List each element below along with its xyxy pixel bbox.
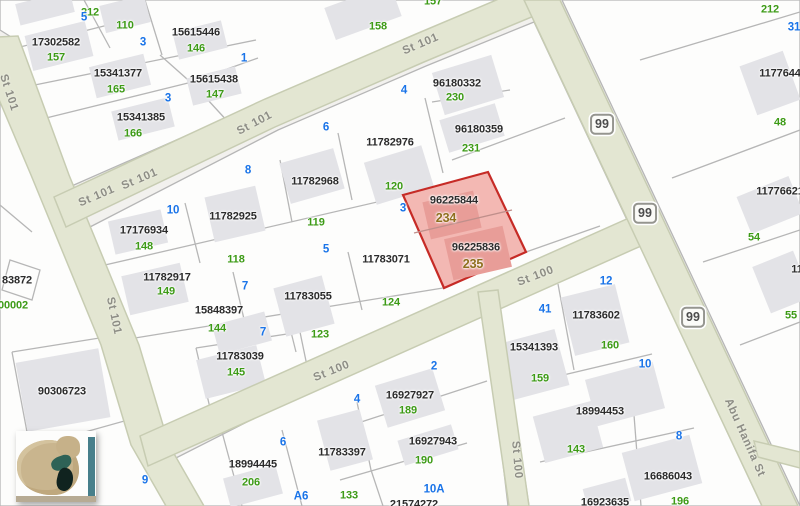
plot-number-label: 231 [462, 144, 480, 155]
unit-number-label: 4 [354, 394, 360, 406]
parcel-number-label: 16686043 [644, 472, 692, 483]
parcel-number-label: 21574272 [390, 500, 438, 506]
road-name-label: St 100 [516, 265, 556, 289]
unit-number-label: 3 [400, 203, 406, 215]
plot-number-label: 48 [774, 118, 786, 129]
plot-number-label: 157 [424, 0, 442, 8]
parcel-number-label: 15615446 [172, 28, 220, 39]
plot-number-label: 159 [531, 374, 549, 385]
plot-number-label: 54 [748, 233, 760, 244]
parcel-number-label: 15341393 [510, 343, 558, 354]
plot-number-label: 206 [242, 478, 260, 489]
plot-number-label: 145 [227, 368, 245, 379]
plot-number-label: 55 [785, 311, 797, 322]
plot-number-label: 149 [157, 287, 175, 298]
parcel-number-label: 15341377 [94, 69, 142, 80]
parcel-number-label: 11782917 [143, 273, 191, 284]
unit-number-label: 6 [280, 437, 286, 449]
parcel-number-label: 96180332 [433, 79, 481, 90]
plot-number-label: 144 [208, 324, 226, 335]
road-name-label: St 101 [103, 296, 122, 336]
parcel-number-label: 15848397 [195, 306, 243, 317]
parcel-number-label: 96180359 [455, 125, 503, 136]
road-name-label: St 100 [509, 441, 524, 480]
basemap-thumbnail[interactable] [16, 431, 96, 502]
unit-number-label: 10 [167, 205, 180, 217]
unit-number-label: 31 [788, 22, 800, 34]
plot-number-label: 158 [369, 22, 387, 33]
road-name-label: St 100 [312, 360, 352, 385]
unit-number-label: A6 [294, 491, 309, 503]
parcel-number-label: 11783397 [318, 448, 366, 459]
parcel-number-label: 83872 [2, 276, 32, 287]
road-name-label: Abu Hanifa St [722, 397, 767, 479]
plot-number-label: 143 [567, 445, 585, 456]
plot-number-label: 160 [601, 341, 619, 352]
parcel-number-label: 11 [791, 265, 800, 276]
parcel-number-label: 96225836 [452, 243, 500, 254]
plot-number-label: 123 [311, 330, 329, 341]
road-name-label: St 101 [77, 184, 117, 209]
unit-number-label: 10 [639, 359, 652, 371]
plot-number-label: 190 [415, 456, 433, 467]
parcel-number-label: 96225844 [430, 196, 478, 207]
parcel-number-label: 11783071 [362, 255, 410, 266]
unit-number-label: 8 [676, 431, 682, 443]
map-labels-layer: 1730258215615446153413771561543815341385… [0, 0, 800, 506]
parcel-number-label: 11782925 [209, 212, 257, 223]
plot-number-label: 110 [116, 21, 133, 32]
parcel-number-label: 18994453 [576, 407, 624, 418]
unit-number-label: 2 [431, 361, 437, 373]
parcel-number-label: 11776445 [759, 69, 800, 80]
unit-number-label: 5 [323, 244, 329, 256]
plot-number-label: 146 [187, 44, 205, 55]
unit-number-label: 7 [260, 327, 266, 339]
route-99-badge: 99 [633, 203, 657, 224]
unit-number-label: 4 [401, 85, 407, 97]
plot-number-label: 148 [135, 242, 153, 253]
unit-number-label: 12 [600, 276, 613, 288]
parcel-number-label: 11783039 [216, 352, 264, 363]
unit-number-label: 3 [140, 37, 146, 49]
plot-number-label: 166 [124, 129, 142, 140]
thumbnail-bottom-bar [16, 496, 96, 502]
plot-number-label: 147 [206, 90, 224, 101]
parcel-number-label: 11782976 [366, 138, 414, 149]
plot-number-label: 120 [385, 182, 403, 193]
route-99-badge: 99 [681, 307, 705, 328]
road-name-label: St 101 [120, 167, 160, 192]
plot-number-label: 133 [340, 491, 358, 502]
plot-number-label: 212 [761, 5, 779, 16]
plot-number-label: 00002 [0, 301, 28, 312]
parcel-number-label: 15341385 [117, 113, 165, 124]
parcel-number-label: 11776621 [756, 187, 800, 198]
plot-number-label: 118 [227, 255, 244, 266]
parcel-number-label: 18994445 [229, 460, 277, 471]
unit-number-label: 9 [142, 475, 148, 487]
parcel-number-label: 11782968 [291, 177, 339, 188]
thumbnail-sea-strip [88, 437, 95, 497]
plot-number-label: 119 [307, 218, 324, 229]
parcel-number-label: 16923635 [581, 498, 629, 506]
plot-number-label: 157 [47, 53, 65, 64]
unit-number-label: 6 [323, 122, 329, 134]
unit-number-label: 7 [242, 281, 248, 293]
road-name-label: St 101 [401, 32, 441, 57]
unit-number-label: 1 [241, 53, 247, 65]
plot-number-label: 189 [399, 406, 417, 417]
parcel-number-label: 15615438 [190, 75, 238, 86]
plot-number-label: 124 [382, 298, 400, 309]
road-name-label: St 101 [235, 110, 274, 138]
unit-number-label: 3 [165, 93, 171, 105]
parcel-number-label: 11783602 [572, 311, 620, 322]
unit-number-label: 10A [424, 484, 445, 496]
road-name-label: St 101 [0, 73, 19, 113]
parcel-number-label: 16927943 [409, 437, 457, 448]
unit-number-label: 8 [245, 165, 251, 177]
plot-number-label: 196 [671, 497, 689, 506]
parcel-number-label: 17176934 [120, 226, 168, 237]
route-99-badge: 99 [590, 114, 614, 135]
parcel-number-label: 16927927 [386, 391, 434, 402]
plot-number-label: 230 [446, 93, 464, 104]
unit-number-label: 5 [81, 12, 87, 24]
unit-number-label: 41 [539, 304, 552, 316]
parcel-number-label: 11783055 [284, 292, 332, 303]
plot-number-label: 165 [107, 85, 125, 96]
parcel-number-label: 17302582 [32, 38, 80, 49]
selected-plot-number-label: 234 [436, 212, 457, 225]
parcel-number-label: 90306723 [38, 387, 86, 398]
selected-plot-number-label: 235 [463, 258, 484, 271]
map-canvas[interactable]: 1730258215615446153413771561543815341385… [0, 0, 800, 506]
